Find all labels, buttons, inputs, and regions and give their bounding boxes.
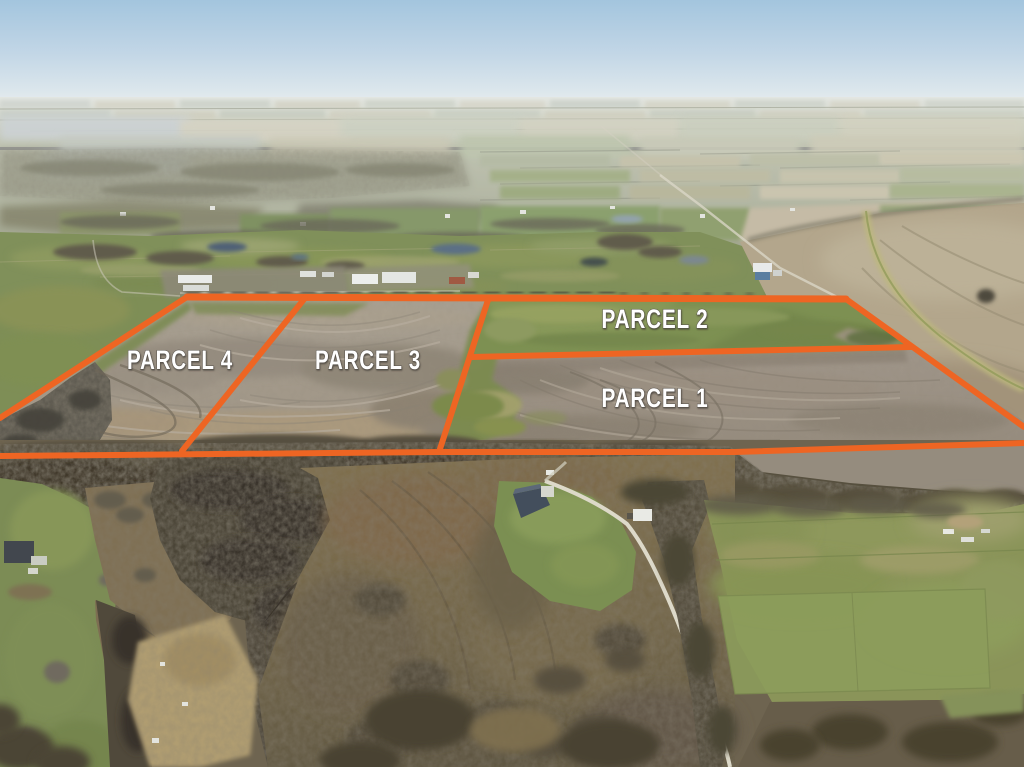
svg-text:PARCEL 3: PARCEL 3 xyxy=(315,345,421,375)
svg-text:PARCEL 1: PARCEL 1 xyxy=(602,383,709,413)
svg-text:PARCEL 2: PARCEL 2 xyxy=(602,304,709,334)
svg-text:PARCEL 4: PARCEL 4 xyxy=(127,345,233,375)
